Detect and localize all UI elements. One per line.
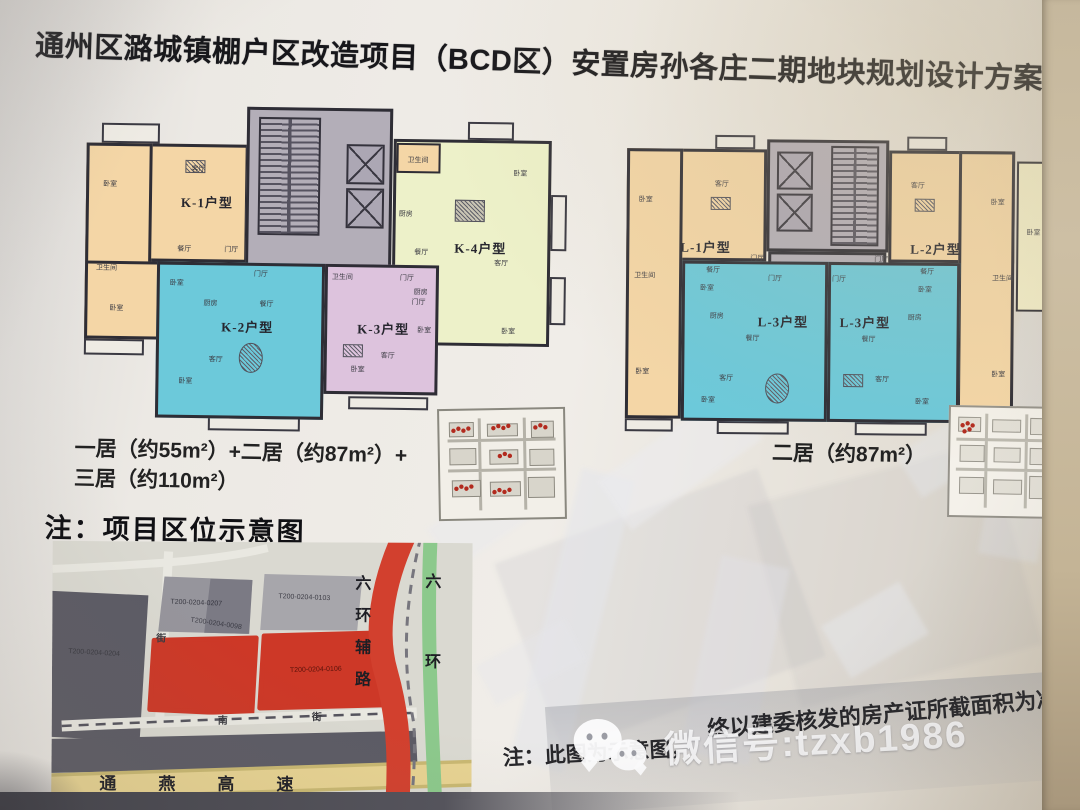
room-label: 卫生间 — [992, 275, 1013, 282]
unit-label-k2: K-2户型 — [221, 316, 273, 336]
room-label: 餐厅 — [259, 301, 273, 308]
unit-label-l3: L-3户型 — [758, 311, 809, 330]
room-label: 客厅 — [719, 375, 733, 382]
street-label: 街 — [311, 710, 322, 723]
room-label: 客厅 — [381, 353, 395, 360]
room-label: 门厅 — [874, 256, 888, 263]
room-label: 卧室 — [501, 328, 515, 335]
unit-label-k1: K-1户型 — [181, 192, 233, 212]
site-plan-inset-left — [437, 407, 567, 521]
balcony — [907, 137, 947, 151]
room-label: 门厅 — [832, 276, 846, 283]
street-label: 街 — [155, 631, 166, 644]
room-label: 门厅 — [750, 255, 764, 262]
room-label: 门厅 — [768, 275, 782, 282]
room-label: 门厅 — [254, 271, 268, 278]
elevator-shaft — [346, 144, 385, 185]
unit-label-l2: L-2户型 — [910, 239, 961, 258]
unit-label-l3: L-3户型 — [840, 312, 891, 331]
room-label: 卫生间 — [332, 274, 353, 281]
balcony — [468, 122, 514, 141]
unit-label-k3: K-3户型 — [357, 318, 409, 338]
balcony — [84, 339, 144, 356]
room-label: 餐厅 — [746, 335, 760, 342]
street-label: 南 — [218, 714, 228, 727]
caption-right: 二居（约87m²） — [772, 439, 927, 472]
room-label: 餐厅 — [706, 267, 720, 274]
sofa-hatch — [765, 373, 789, 403]
room-label: 卫生间 — [634, 272, 655, 279]
balcony — [102, 123, 160, 144]
room-label: 餐厅 — [177, 246, 191, 253]
room-label: 厨房 — [414, 289, 428, 296]
photo-right-edge — [1042, 0, 1080, 810]
staircase — [257, 117, 321, 236]
unit-label-k4: K-4户型 — [454, 238, 506, 258]
sofa-hatch — [915, 199, 935, 212]
room-label: 餐厅 — [414, 249, 428, 256]
elevator-shaft — [346, 188, 385, 229]
sofa-hatch — [343, 344, 363, 357]
unit-label-l1: L-1户型 — [680, 237, 731, 256]
unit-l1 — [625, 148, 683, 418]
room-label: 卧室 — [170, 280, 184, 287]
elevator-shaft — [776, 193, 812, 231]
room-label: 厨房 — [399, 211, 413, 218]
floor-plan-left: K-1户型 K-2户型 K-3户型 K-4户型 卧室 客厅 餐厅 门厅 卫生间 … — [60, 102, 610, 440]
room-label: 餐厅 — [862, 336, 876, 343]
room-label: 卧室 — [701, 397, 715, 404]
room-label: 客厅 — [209, 356, 223, 363]
balcony — [625, 418, 673, 431]
room-label: 客厅 — [715, 181, 729, 188]
room-label: 卧室 — [700, 285, 714, 292]
room-label: 厨房 — [710, 313, 724, 320]
room-label: 卧室 — [109, 305, 123, 312]
sofa-hatch — [843, 374, 863, 387]
poster-title: 通州区潞城镇棚户区改造项目（BCD区）安置房孙各庄二期地块规划设计方案 — [35, 22, 1066, 98]
unit-l2 — [957, 151, 1015, 423]
floor-plan-right: L-1户型 L-2户型 L-3户型 L-3户型 卧室 客厅 餐厅 门厅 卫生间 … — [617, 134, 1060, 438]
road-label-ring-aux: 六环辅路 — [348, 574, 373, 702]
room-label: 厨房 — [908, 315, 922, 322]
room-label: 卫生间 — [96, 265, 117, 272]
room-label: 卧室 — [635, 368, 649, 375]
room-label: 卧室 — [513, 170, 527, 177]
room-label: 卧室 — [915, 399, 929, 406]
parcel-gray — [260, 574, 362, 631]
room-label: 卧室 — [991, 371, 1005, 378]
photo-bottom-edge — [0, 792, 740, 810]
room-label: 卧室 — [103, 181, 117, 188]
room-label: 门厅 — [400, 275, 414, 282]
sofa-hatch — [455, 200, 485, 222]
elevator-shaft — [777, 151, 813, 189]
balcony — [549, 277, 566, 325]
balcony — [717, 421, 789, 435]
location-map: T200-0204-0207 T200-0204-0098 T200-0204-… — [51, 541, 472, 799]
unit-l3-right — [827, 262, 960, 423]
room-label: 餐厅 — [920, 269, 934, 276]
room-label: 客厅 — [875, 376, 889, 383]
caption-left: 一居（约55m²）+二居（约87m²）+ 三居（约110m²） — [74, 434, 408, 502]
sofa-hatch — [711, 197, 731, 210]
room-label: 卧室 — [1026, 230, 1040, 237]
room-label: 客厅 — [191, 166, 205, 173]
wechat-icon — [571, 714, 652, 784]
room-label: 卧室 — [918, 287, 932, 294]
room-label: 门厅 — [412, 299, 426, 306]
balcony — [550, 195, 567, 251]
room-label: 客厅 — [911, 183, 925, 190]
room-label: 门厅 — [224, 246, 238, 253]
parcel-red — [150, 637, 256, 714]
room-label: 卧室 — [417, 327, 431, 334]
room-label: 卫生间 — [408, 157, 429, 164]
road-label-ring: 六环 — [418, 573, 443, 733]
room-label: 客厅 — [494, 260, 508, 267]
room-label: 厨房 — [203, 300, 217, 307]
poster-photo: 通州区潞城镇棚户区改造项目（BCD区）安置房孙各庄二期地块规划设计方案 K-1户… — [0, 0, 1080, 810]
room-label: 卧室 — [991, 199, 1005, 206]
room-label: 卧室 — [178, 378, 192, 385]
staircase — [830, 146, 879, 246]
room-label: 卧室 — [351, 366, 365, 373]
balcony — [715, 135, 755, 149]
balcony — [855, 422, 927, 436]
wechat-id: 微信号:tzxb1986 — [663, 704, 969, 774]
room-label: 卧室 — [639, 196, 653, 203]
balcony — [348, 396, 428, 410]
